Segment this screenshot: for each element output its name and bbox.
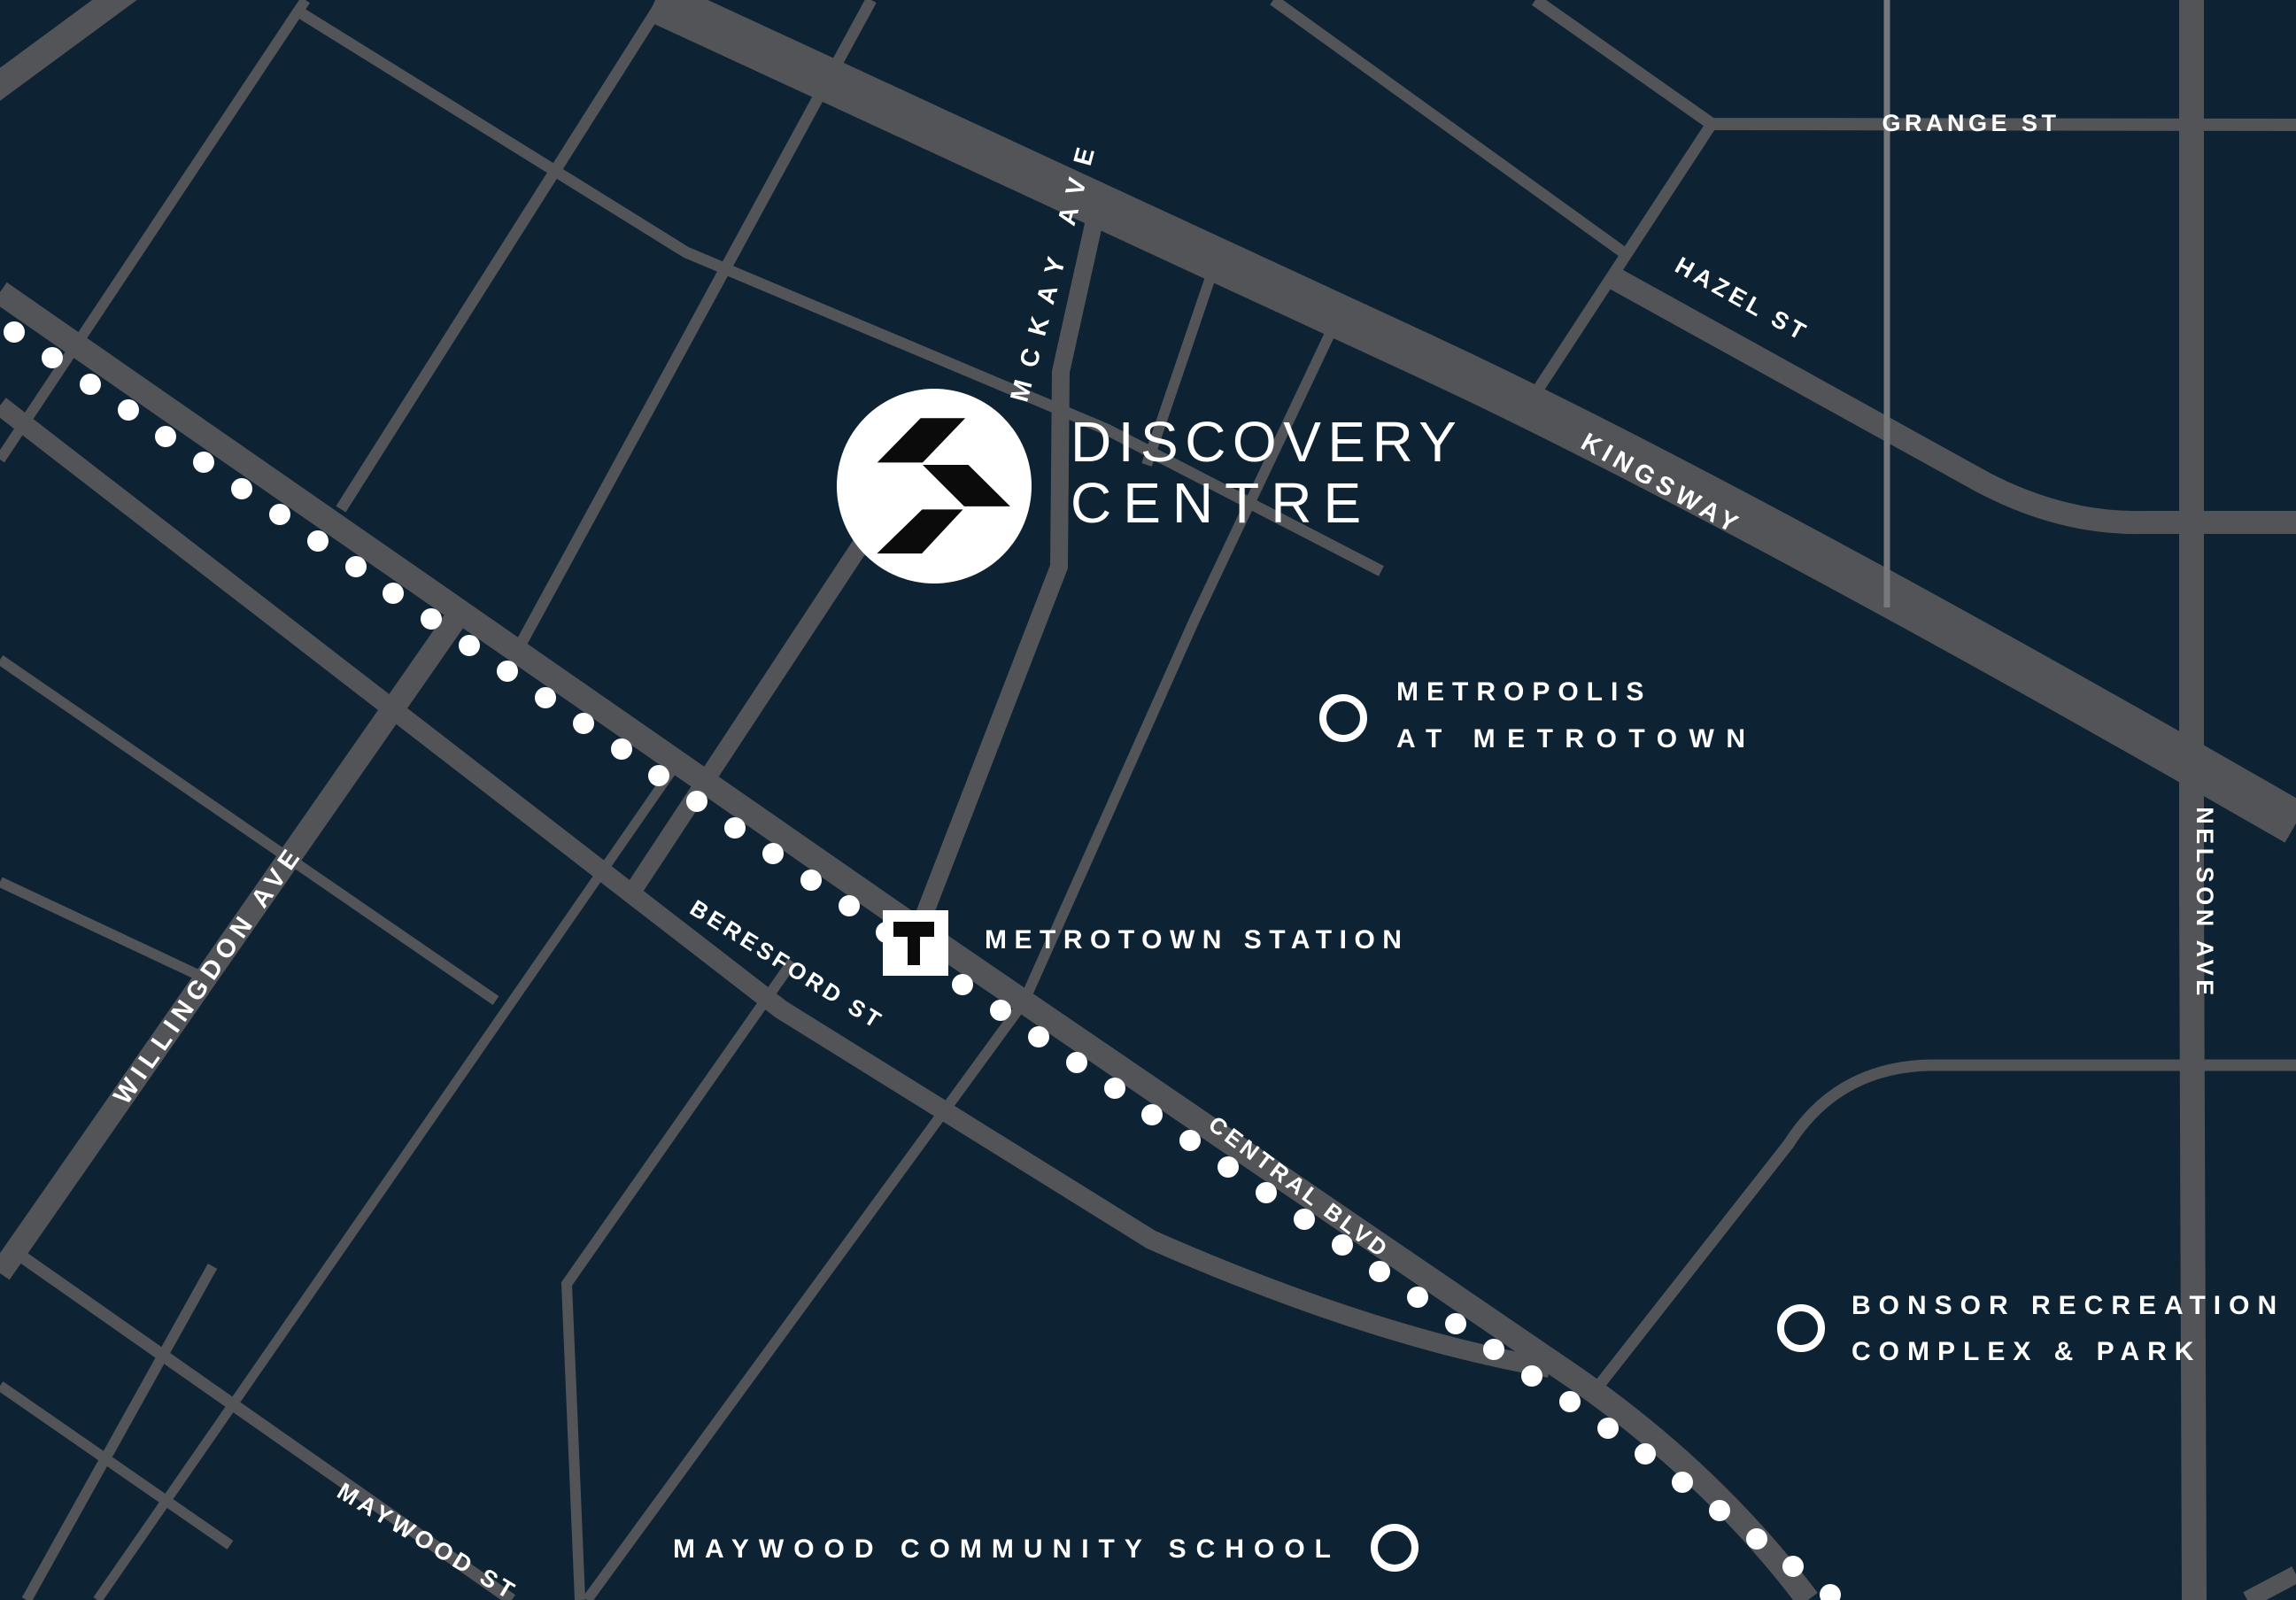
svg-text:METROPOLIS: METROPOLIS: [1396, 677, 1651, 707]
svg-text:GRANGE ST: GRANGE ST: [1882, 110, 2060, 136]
svg-text:METROTOWN STATION: METROTOWN STATION: [985, 925, 1409, 955]
svg-text:AT METROTOWN: AT METROTOWN: [1396, 724, 1758, 754]
svg-text:COMPLEX & PARK: COMPLEX & PARK: [1851, 1337, 2201, 1366]
svg-text:MAYWOOD COMMUNITY SCHOOL: MAYWOOD COMMUNITY SCHOOL: [673, 1534, 1341, 1564]
svg-text:NELSON AVE: NELSON AVE: [2192, 807, 2218, 1000]
svg-text:CENTRE: CENTRE: [1071, 471, 1372, 535]
svg-text:DISCOVERY: DISCOVERY: [1071, 410, 1463, 474]
svg-text:BONSOR RECREATION: BONSOR RECREATION: [1851, 1291, 2284, 1320]
